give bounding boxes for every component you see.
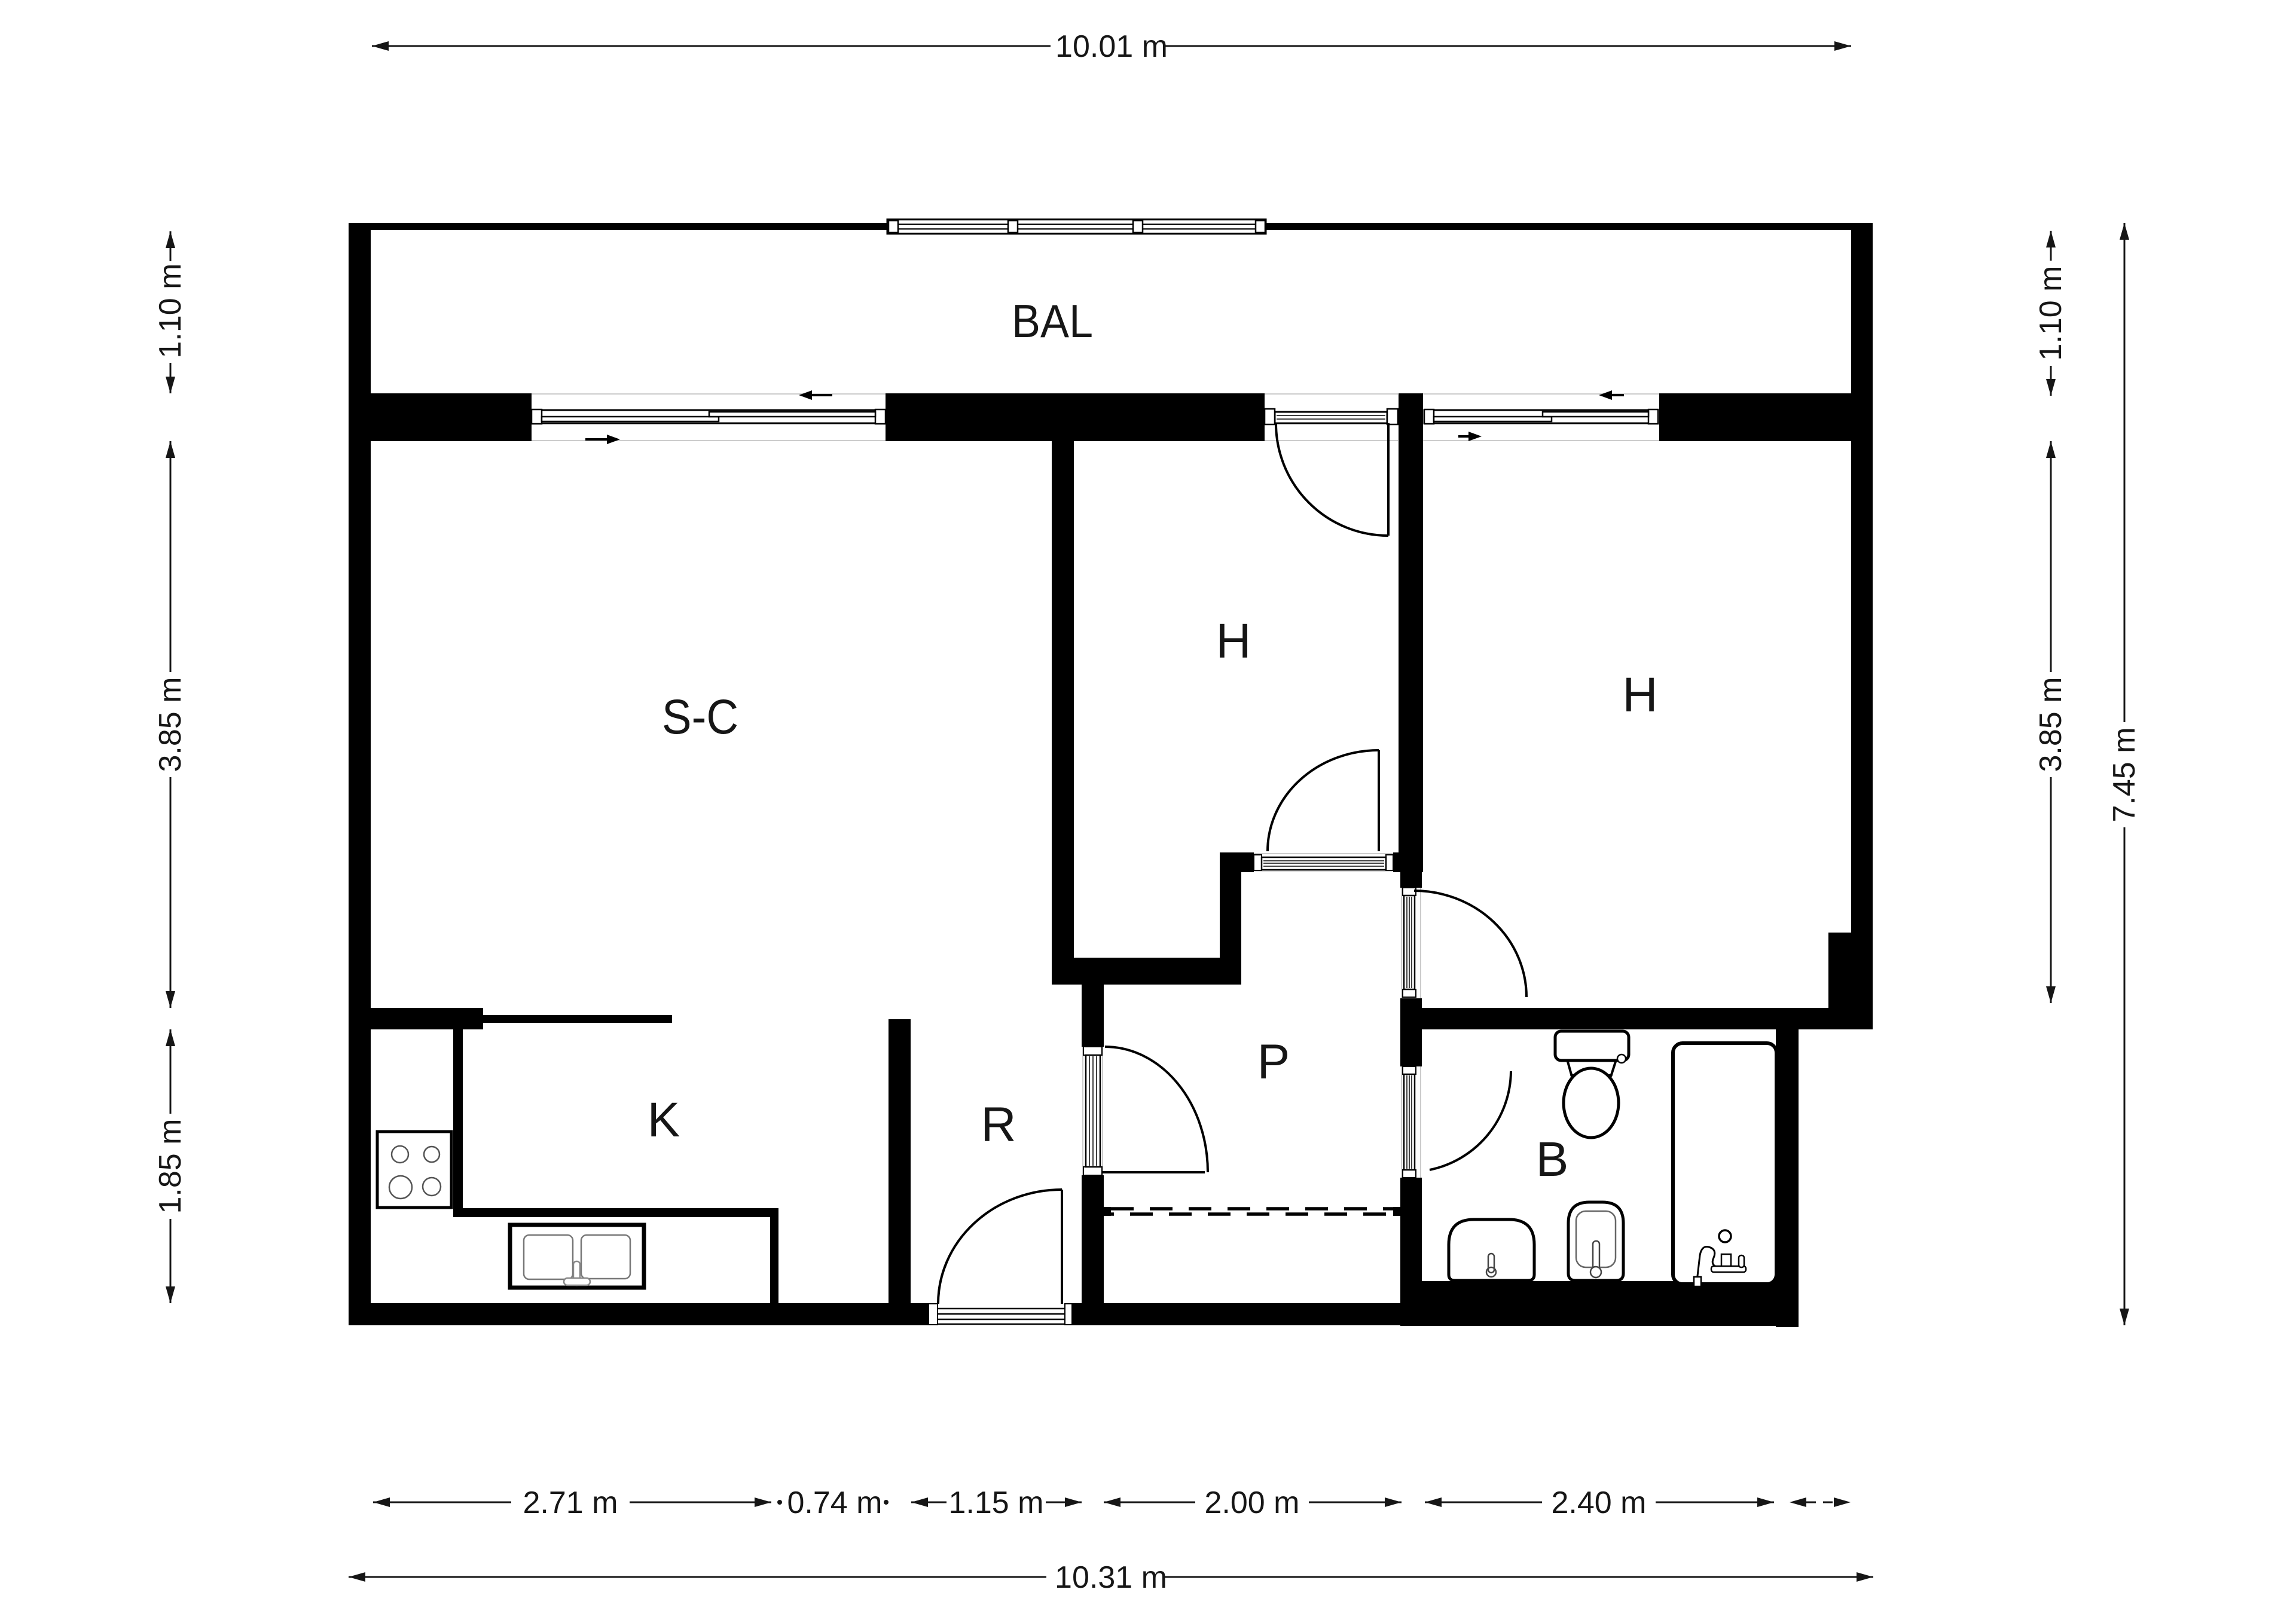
svg-text:1.15 m: 1.15 m	[949, 1486, 1044, 1520]
svg-text:2.71 m: 2.71 m	[523, 1486, 618, 1520]
svg-text:1.10 m: 1.10 m	[2034, 266, 2068, 361]
svg-text:H: H	[1216, 614, 1251, 668]
svg-text:K: K	[648, 1093, 680, 1147]
svg-text:2.00 m: 2.00 m	[1205, 1486, 1300, 1520]
svg-text:B: B	[1536, 1132, 1569, 1187]
svg-text:P: P	[1257, 1035, 1290, 1089]
svg-text:7.45 m: 7.45 m	[2107, 728, 2142, 823]
svg-text:10.31 m: 10.31 m	[1055, 1560, 1167, 1595]
svg-text:H: H	[1622, 668, 1657, 722]
svg-text:1.10 m: 1.10 m	[153, 264, 188, 359]
svg-text:3.85 m: 3.85 m	[153, 677, 188, 772]
svg-text:BAL: BAL	[1012, 295, 1093, 347]
svg-text:10.01 m: 10.01 m	[1055, 29, 1168, 64]
svg-text:2.40 m: 2.40 m	[1552, 1486, 1647, 1520]
svg-text:S-C: S-C	[662, 690, 738, 744]
svg-text:3.85 m: 3.85 m	[2034, 677, 2068, 772]
svg-text:R: R	[981, 1098, 1016, 1152]
svg-text:0.74 m: 0.74 m	[787, 1486, 883, 1520]
svg-text:1.85 m: 1.85 m	[153, 1119, 188, 1214]
